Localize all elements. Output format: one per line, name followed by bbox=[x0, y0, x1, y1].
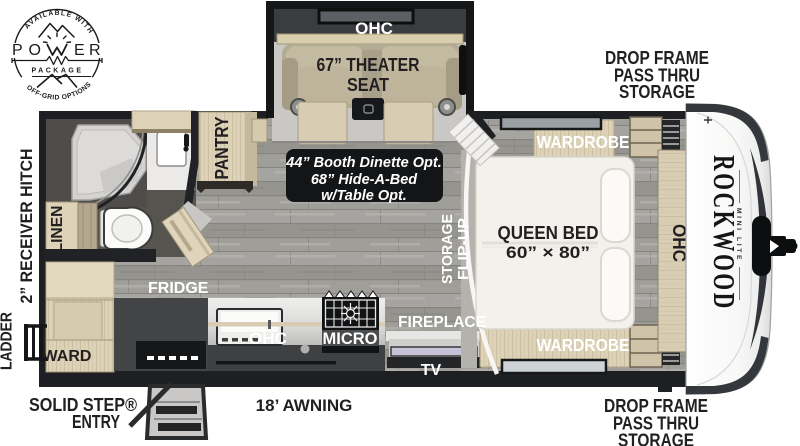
svg-text:WARDROBE: WARDROBE bbox=[537, 132, 630, 152]
svg-text:STORAGE: STORAGE bbox=[619, 82, 695, 102]
svg-text:MINI LITE: MINI LITE bbox=[735, 208, 742, 262]
svg-text:68” Hide-A-Bed: 68” Hide-A-Bed bbox=[311, 172, 418, 188]
svg-text:FRIDGE: FRIDGE bbox=[148, 280, 209, 297]
svg-text:QUEEN BED: QUEEN BED bbox=[498, 223, 599, 243]
svg-text:60” × 80”: 60” × 80” bbox=[506, 243, 590, 262]
svg-text:67” THEATER: 67” THEATER bbox=[317, 54, 420, 75]
svg-text:FLIP-UP: FLIP-UP bbox=[455, 218, 472, 280]
svg-text:WARD: WARD bbox=[43, 348, 92, 365]
svg-text:PACKAGE: PACKAGE bbox=[32, 68, 84, 75]
svg-text:E: E bbox=[74, 42, 85, 59]
svg-text:STORAGE: STORAGE bbox=[618, 431, 694, 446]
svg-text:OHC: OHC bbox=[355, 19, 393, 38]
svg-text:R: R bbox=[89, 42, 101, 59]
svg-text:ENTRY: ENTRY bbox=[72, 412, 120, 432]
svg-text:SEAT: SEAT bbox=[347, 74, 390, 95]
svg-text:WARDROBE: WARDROBE bbox=[537, 335, 630, 355]
svg-text:STORAGE: STORAGE bbox=[439, 214, 456, 284]
svg-text:O: O bbox=[29, 42, 41, 59]
svg-text:18’ AWNING: 18’ AWNING bbox=[256, 396, 353, 415]
svg-text:OHC: OHC bbox=[249, 329, 287, 348]
svg-text:LINEN: LINEN bbox=[49, 206, 66, 253]
svg-text:LADDER: LADDER bbox=[0, 312, 16, 370]
svg-text:TV: TV bbox=[421, 362, 442, 379]
svg-text:PANTRY: PANTRY bbox=[212, 117, 232, 180]
svg-text:P: P bbox=[12, 42, 23, 59]
svg-text:w/Table Opt.: w/Table Opt. bbox=[321, 188, 407, 204]
svg-text:FIREPLACE: FIREPLACE bbox=[398, 314, 486, 331]
svg-text:MICRO: MICRO bbox=[323, 330, 378, 348]
svg-text:2” RECEIVER HITCH: 2” RECEIVER HITCH bbox=[18, 149, 36, 304]
svg-text:44” Booth Dinette Opt.: 44” Booth Dinette Opt. bbox=[285, 155, 441, 171]
